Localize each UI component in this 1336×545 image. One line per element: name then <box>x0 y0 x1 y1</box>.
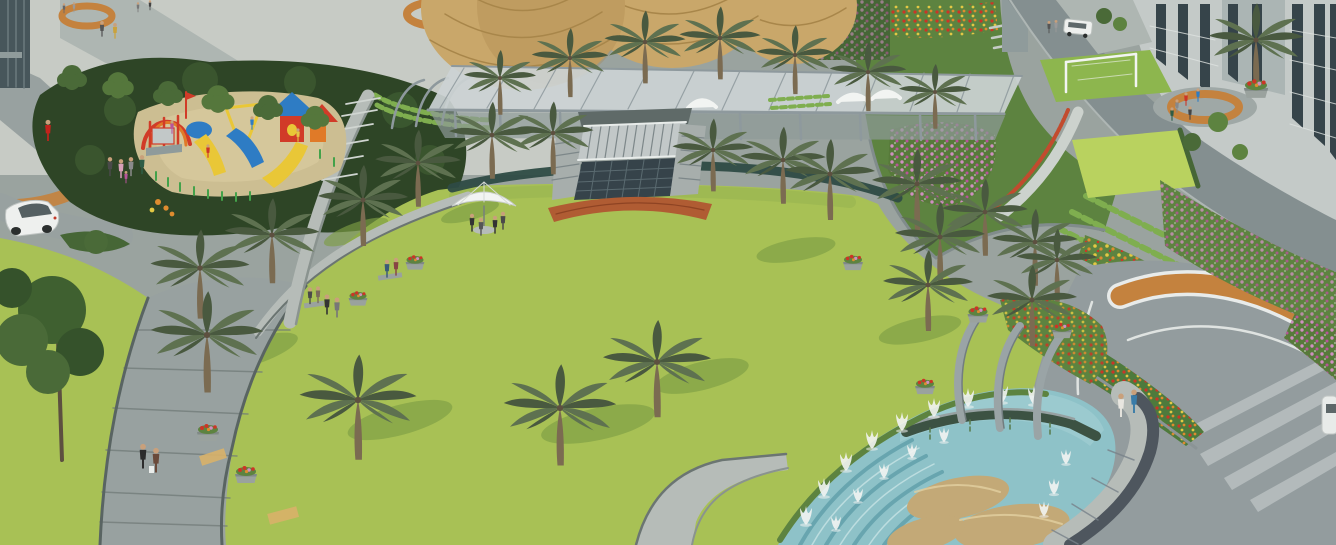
landscape-render: Aerial 3D architectural rendering of a r… <box>0 0 1336 545</box>
blue-dome <box>186 122 212 139</box>
scene-svg: Aerial 3D architectural rendering of a r… <box>0 0 1336 545</box>
white-car <box>6 200 59 236</box>
glass-building-sliver <box>0 0 30 88</box>
cafe-table <box>473 226 495 234</box>
lawn-panel <box>1072 130 1198 198</box>
shopping-bag <box>149 466 154 473</box>
partial-car <box>1322 396 1336 434</box>
